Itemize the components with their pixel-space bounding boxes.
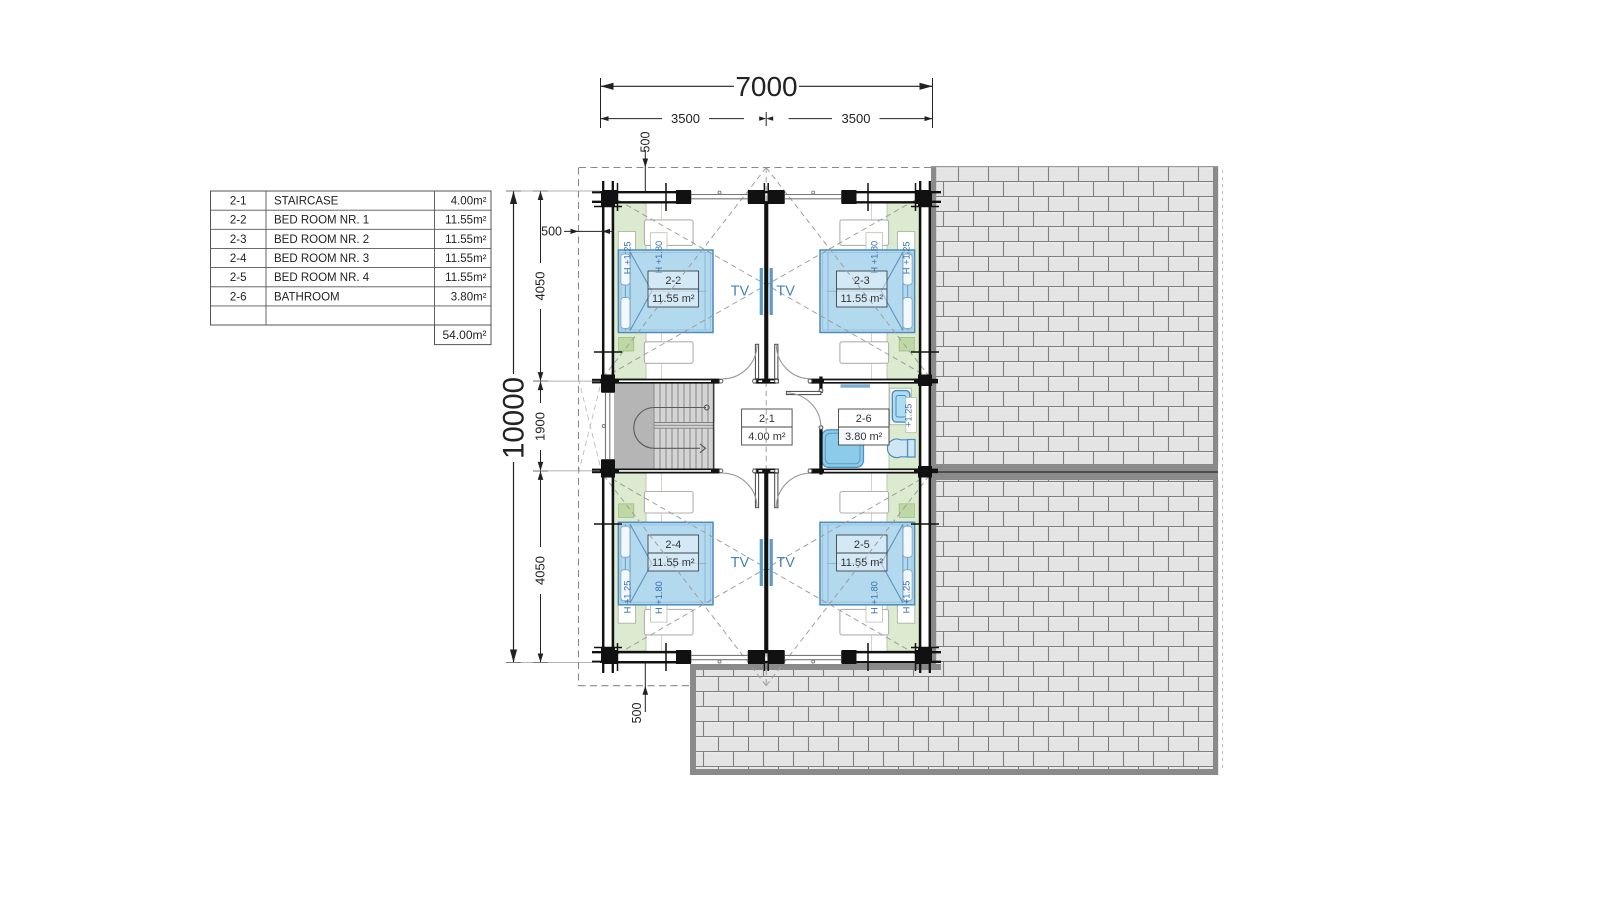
- svg-text:3.80 m²: 3.80 m²: [845, 431, 883, 443]
- svg-text:4050: 4050: [533, 556, 548, 585]
- svg-text:H +1.25: H +1.25: [622, 241, 632, 274]
- svg-text:H +1.80: H +1.80: [654, 241, 664, 274]
- svg-text:H +1.80: H +1.80: [870, 581, 880, 614]
- svg-text:H +1.25: H +1.25: [902, 581, 912, 614]
- svg-text:4.00 m²: 4.00 m²: [748, 431, 786, 443]
- svg-text:7000: 7000: [735, 71, 797, 102]
- svg-text:2-4: 2-4: [230, 253, 247, 265]
- svg-text:H +1.80: H +1.80: [654, 581, 664, 614]
- svg-text:TV: TV: [731, 555, 750, 571]
- svg-text:BED ROOM NR. 1: BED ROOM NR. 1: [274, 215, 369, 227]
- svg-text:BATHROOM: BATHROOM: [274, 291, 340, 303]
- svg-text:500: 500: [639, 132, 653, 153]
- svg-text:TV: TV: [731, 284, 750, 300]
- svg-text:2-6: 2-6: [230, 291, 247, 303]
- svg-text:3.80m²: 3.80m²: [451, 291, 487, 303]
- svg-text:11.55 m²: 11.55 m²: [841, 293, 884, 305]
- svg-text:BED ROOM NR. 2: BED ROOM NR. 2: [274, 234, 369, 246]
- svg-text:2-2: 2-2: [230, 215, 247, 227]
- svg-text:2-6: 2-6: [856, 413, 872, 425]
- svg-text:H +1.80: H +1.80: [870, 241, 880, 274]
- svg-text:4.00m²: 4.00m²: [451, 196, 487, 208]
- svg-text:+1.25: +1.25: [904, 404, 914, 428]
- svg-text:3500: 3500: [842, 111, 871, 126]
- svg-text:500: 500: [630, 703, 644, 724]
- svg-text:STAIRCASE: STAIRCASE: [274, 196, 339, 208]
- svg-text:11.55 m²: 11.55 m²: [652, 557, 695, 569]
- svg-text:11.55m²: 11.55m²: [445, 215, 487, 227]
- svg-text:2-2: 2-2: [665, 275, 681, 287]
- svg-text:11.55m²: 11.55m²: [445, 234, 487, 246]
- svg-text:2-1: 2-1: [759, 413, 775, 425]
- svg-text:500: 500: [541, 225, 562, 239]
- svg-text:2-3: 2-3: [854, 275, 870, 287]
- svg-text:2-4: 2-4: [665, 539, 681, 551]
- svg-text:54.00m²: 54.00m²: [442, 328, 486, 342]
- svg-text:10000: 10000: [498, 377, 531, 459]
- svg-text:2-1: 2-1: [230, 196, 247, 208]
- svg-text:TV: TV: [776, 284, 795, 300]
- svg-text:2-5: 2-5: [230, 272, 247, 284]
- svg-text:11.55 m²: 11.55 m²: [841, 557, 884, 569]
- svg-text:2-3: 2-3: [230, 234, 247, 246]
- svg-text:BED ROOM NR. 4: BED ROOM NR. 4: [274, 272, 370, 284]
- svg-text:H +1.25: H +1.25: [902, 241, 912, 274]
- svg-text:TV: TV: [776, 555, 795, 571]
- svg-text:11.55m²: 11.55m²: [445, 272, 487, 284]
- svg-text:H +1.25: H +1.25: [622, 581, 632, 614]
- svg-text:3500: 3500: [671, 111, 700, 126]
- svg-text:1900: 1900: [533, 412, 548, 441]
- svg-text:BED ROOM NR. 3: BED ROOM NR. 3: [274, 253, 369, 265]
- svg-text:2-5: 2-5: [854, 539, 870, 551]
- svg-text:4050: 4050: [533, 272, 548, 301]
- svg-text:11.55m²: 11.55m²: [445, 253, 487, 265]
- svg-text:11.55 m²: 11.55 m²: [652, 293, 695, 305]
